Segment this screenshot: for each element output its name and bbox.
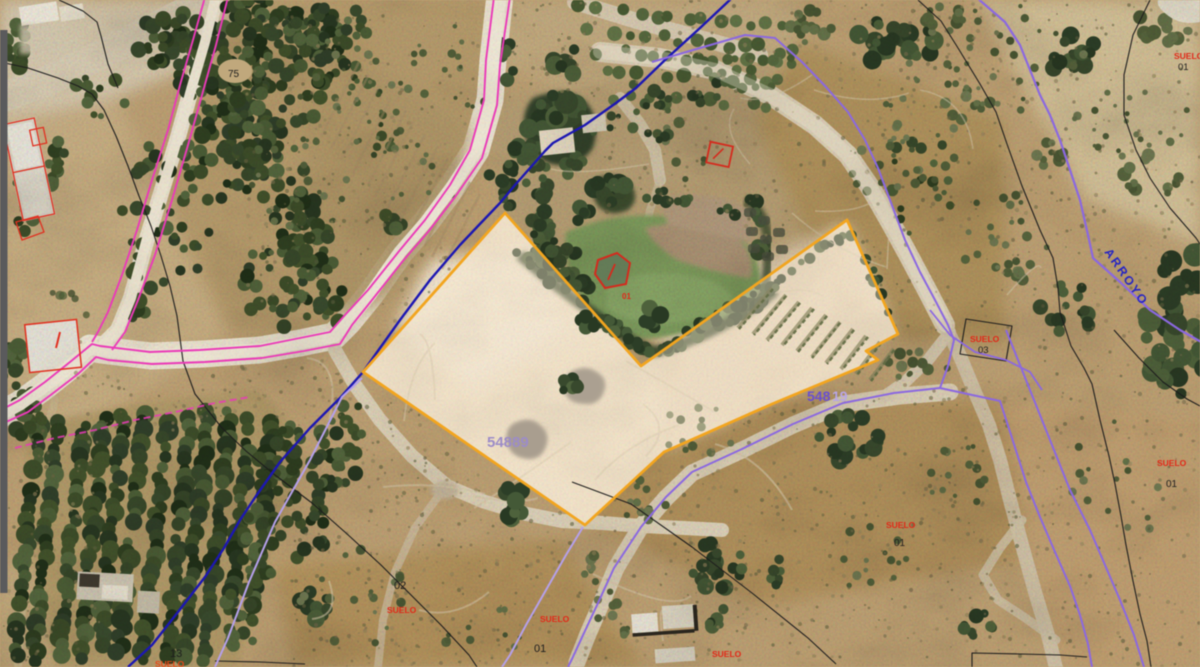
svg-text:SUELO: SUELO — [970, 334, 1000, 344]
svg-text:02: 02 — [394, 580, 406, 592]
svg-text:54889: 54889 — [487, 434, 529, 451]
svg-text:SUELO: SUELO — [155, 659, 185, 667]
svg-text:03: 03 — [978, 345, 989, 356]
svg-text:SUELO: SUELO — [712, 649, 742, 659]
svg-text:SUELO: SUELO — [1174, 51, 1200, 61]
svg-text:19: 19 — [832, 388, 848, 404]
svg-text:01: 01 — [1166, 479, 1178, 490]
svg-text:SUELO: SUELO — [387, 605, 417, 615]
svg-text:01: 01 — [622, 292, 631, 301]
svg-text:SUELO: SUELO — [886, 520, 916, 530]
svg-text:SUELO: SUELO — [1157, 458, 1187, 468]
svg-text:01: 01 — [894, 538, 906, 549]
svg-text:01: 01 — [534, 643, 546, 655]
svg-text:548: 548 — [807, 388, 831, 404]
svg-text:01: 01 — [1178, 62, 1189, 73]
svg-text:75: 75 — [228, 69, 240, 80]
svg-text:SUELO: SUELO — [540, 614, 570, 624]
